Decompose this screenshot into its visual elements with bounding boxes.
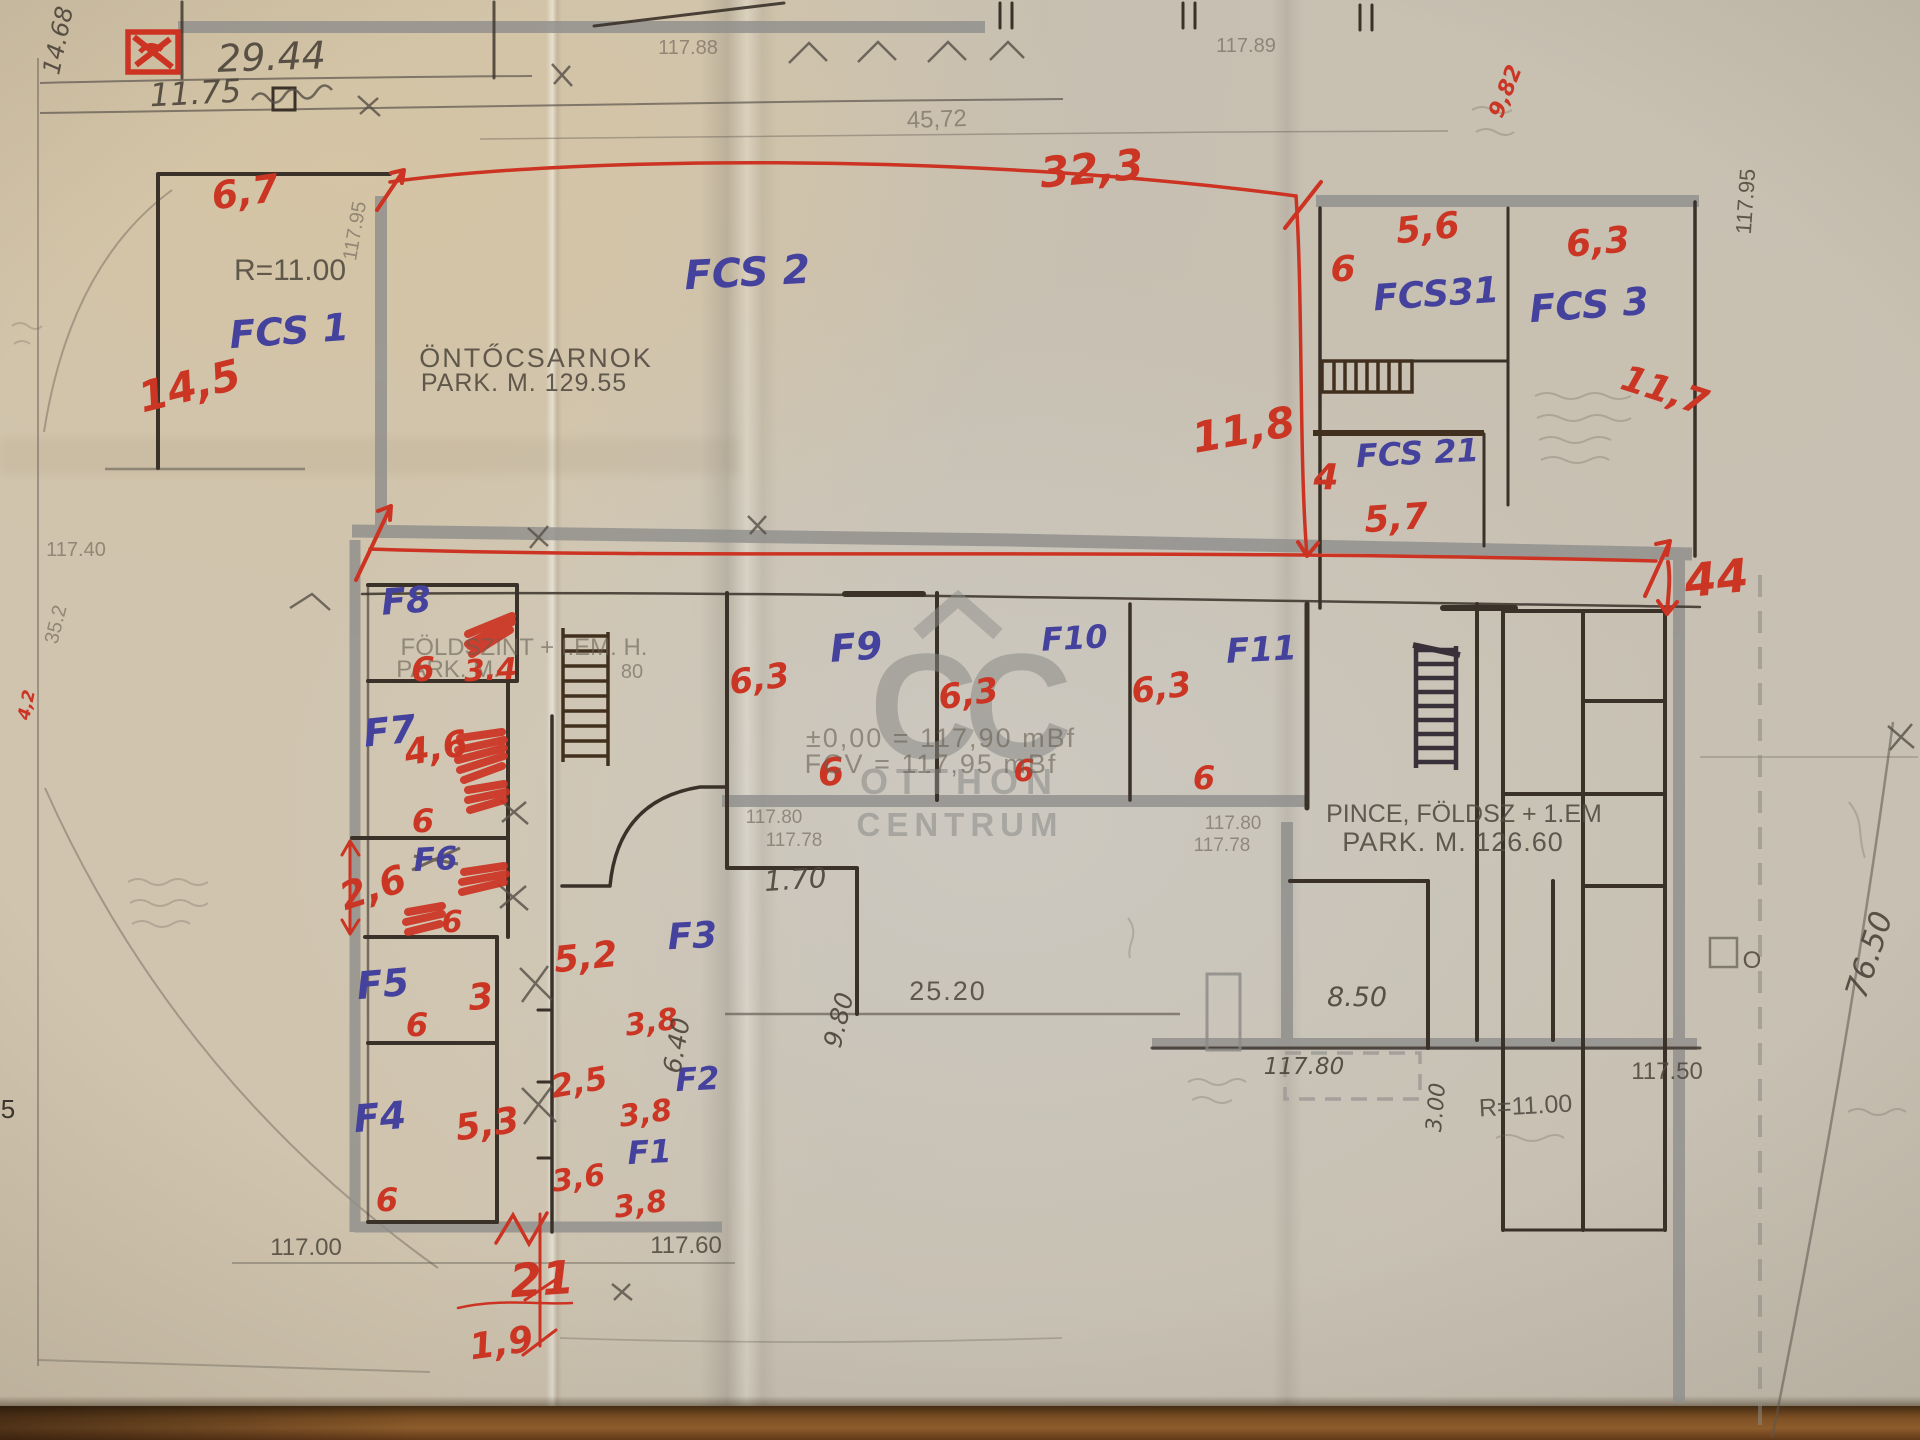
label-red-3-8-f1: 3,8 (612, 1184, 670, 1226)
label-red-5-6: 5,6 (1394, 205, 1462, 252)
label-red-6-f8: 6 (411, 650, 435, 690)
label-red-2-6: 2,6 (334, 856, 412, 919)
label-red-6-3-f9: 6,3 (727, 655, 792, 703)
label-dim-117-88: 117.88 (658, 37, 718, 59)
label-dim-117-78-r: 117.78 (1194, 835, 1251, 856)
label-red-5-7: 5,7 (1363, 496, 1429, 541)
label-dim-117-80-c: 117.80 (746, 807, 803, 828)
label-red-6-f6: 6 (442, 905, 463, 940)
label-red-6-f11: 6 (1193, 759, 1215, 797)
label-red-14-5: 14,5 (133, 350, 245, 423)
label-room-f10: F10 (1040, 617, 1108, 658)
label-dim-14-68: 14.68 (37, 4, 79, 77)
watermark-centrum: CENTRUM (857, 806, 1064, 843)
label-text-park-129-55: PARK. M. 129.55 (421, 369, 627, 397)
label-dim-117-60: 117.60 (650, 1232, 722, 1259)
label-red-5-2: 5,2 (552, 934, 620, 981)
label-text-fcv: FCV = 117,95 mBf (805, 749, 1058, 779)
label-dim-117-89: 117.89 (1216, 35, 1276, 57)
label-num-5-edge: 5 (1, 1094, 15, 1124)
label-room-f4: F4 (352, 1093, 408, 1141)
label-dim-76-50: 76.50 (1839, 907, 1901, 1003)
label-text-pince: PINCE, FÖLDSZ + 1.EM (1326, 800, 1602, 828)
label-red-6-3-f11: 6,3 (1129, 664, 1194, 712)
label-room-f1: F1 (626, 1132, 672, 1172)
floorplan-svg: CC OTTHON CENTRUM 29.4411.7514.68117.881… (0, 0, 1920, 1440)
label-red-4-2-edge: 4,2 (14, 688, 40, 723)
label-room-fcs21: FCS 21 (1355, 431, 1480, 475)
label-room-f11: F11 (1225, 628, 1298, 672)
floorplan-scan: CC OTTHON CENTRUM 29.4411.7514.68117.881… (0, 0, 1920, 1440)
label-red-6-3-f10: 6,3 (936, 670, 1001, 718)
label-red-6-f5: 6 (406, 1006, 428, 1044)
label-dim-3-00: 3.00 (1422, 1082, 1451, 1133)
label-dim-11-75: 11.75 (149, 72, 242, 115)
label-room-fcs1: FCS 1 (228, 305, 350, 357)
label-room-f5: F5 (355, 960, 411, 1008)
label-red-3: 3 (466, 976, 495, 1019)
label-dim-117-78-c: 117.78 (766, 830, 823, 851)
label-dim-117-80-r: 117.80 (1205, 813, 1262, 834)
label-dim-117-95-right: 117.95 (1731, 168, 1761, 235)
label-dim-25-20: 25.20 (909, 976, 987, 1006)
label-red-2-5: 2,5 (548, 1059, 610, 1106)
annotation-labels: 29.4411.7514.68117.88117.8945,7232,36,71… (1, 4, 1901, 1369)
label-r11-left: R=11.00 (234, 254, 346, 287)
label-room-fcs2: FCS 2 (683, 247, 811, 300)
label-dim-117-95-left: 117.95 (339, 200, 371, 263)
label-red-3-4: 3.4 (463, 652, 518, 690)
label-room-f8: F8 (380, 579, 432, 623)
label-room-f3: F3 (667, 915, 719, 959)
label-red-5-3: 5,3 (453, 1100, 522, 1149)
label-red-11-7: 11,7 (1616, 358, 1713, 424)
label-red-6-fcs31: 6 (1330, 249, 1355, 290)
label-r11-right: R=11.00 (1478, 1090, 1573, 1123)
label-dim-117-80-hand: 117.80 (1264, 1054, 1344, 1080)
label-dim-1-70: 1.70 (763, 861, 827, 898)
label-room-f9: F9 (828, 623, 883, 671)
label-red-4: 4 (1312, 457, 1338, 498)
label-dim-117-40: 117.40 (46, 539, 106, 561)
label-red-6-3-fcs3: 6,3 (1564, 219, 1631, 265)
label-room-fcs31: FCS31 (1372, 270, 1500, 320)
label-dim-35-2: 35.2 (41, 603, 72, 646)
label-dim-45-72: 45,72 (906, 105, 967, 134)
label-red-9-82: 9,82 (1484, 62, 1528, 122)
label-red-32-3: 32,3 (1038, 140, 1146, 198)
stairs-right-icon (1413, 643, 1460, 770)
label-text-park-126-60: PARK. M. 126.60 (1342, 827, 1564, 857)
label-letter-o: O (1743, 947, 1762, 974)
label-red-44: 44 (1681, 548, 1751, 609)
label-dim-117-00: 117.00 (270, 1234, 342, 1261)
label-red-3-6: 3,6 (550, 1158, 608, 1200)
label-text-80: 80 (621, 661, 643, 683)
label-red-3-8-f2: 3,8 (617, 1093, 675, 1135)
label-room-fcs3: FCS 3 (1528, 279, 1650, 331)
label-red-1-9: 1,9 (467, 1319, 536, 1368)
label-red-21: 21 (508, 1250, 576, 1308)
label-room-f6: F6 (412, 839, 458, 879)
label-red-11-8: 11,8 (1188, 397, 1299, 463)
label-red-6-f7: 6 (412, 802, 434, 840)
otthon-centrum-watermark: CC OTTHON CENTRUM (857, 599, 1069, 843)
label-dim-9-80: 9.80 (818, 989, 860, 1050)
label-red-6-f4: 6 (376, 1181, 398, 1219)
red-crossed-box-icon (128, 32, 178, 72)
label-dim-117-50: 117.50 (1631, 1058, 1703, 1085)
stairs-fcs31-icon (1313, 361, 1484, 433)
label-dim-8-50: 8.50 (1327, 982, 1387, 1013)
label-red-6-7: 6,7 (209, 166, 282, 219)
